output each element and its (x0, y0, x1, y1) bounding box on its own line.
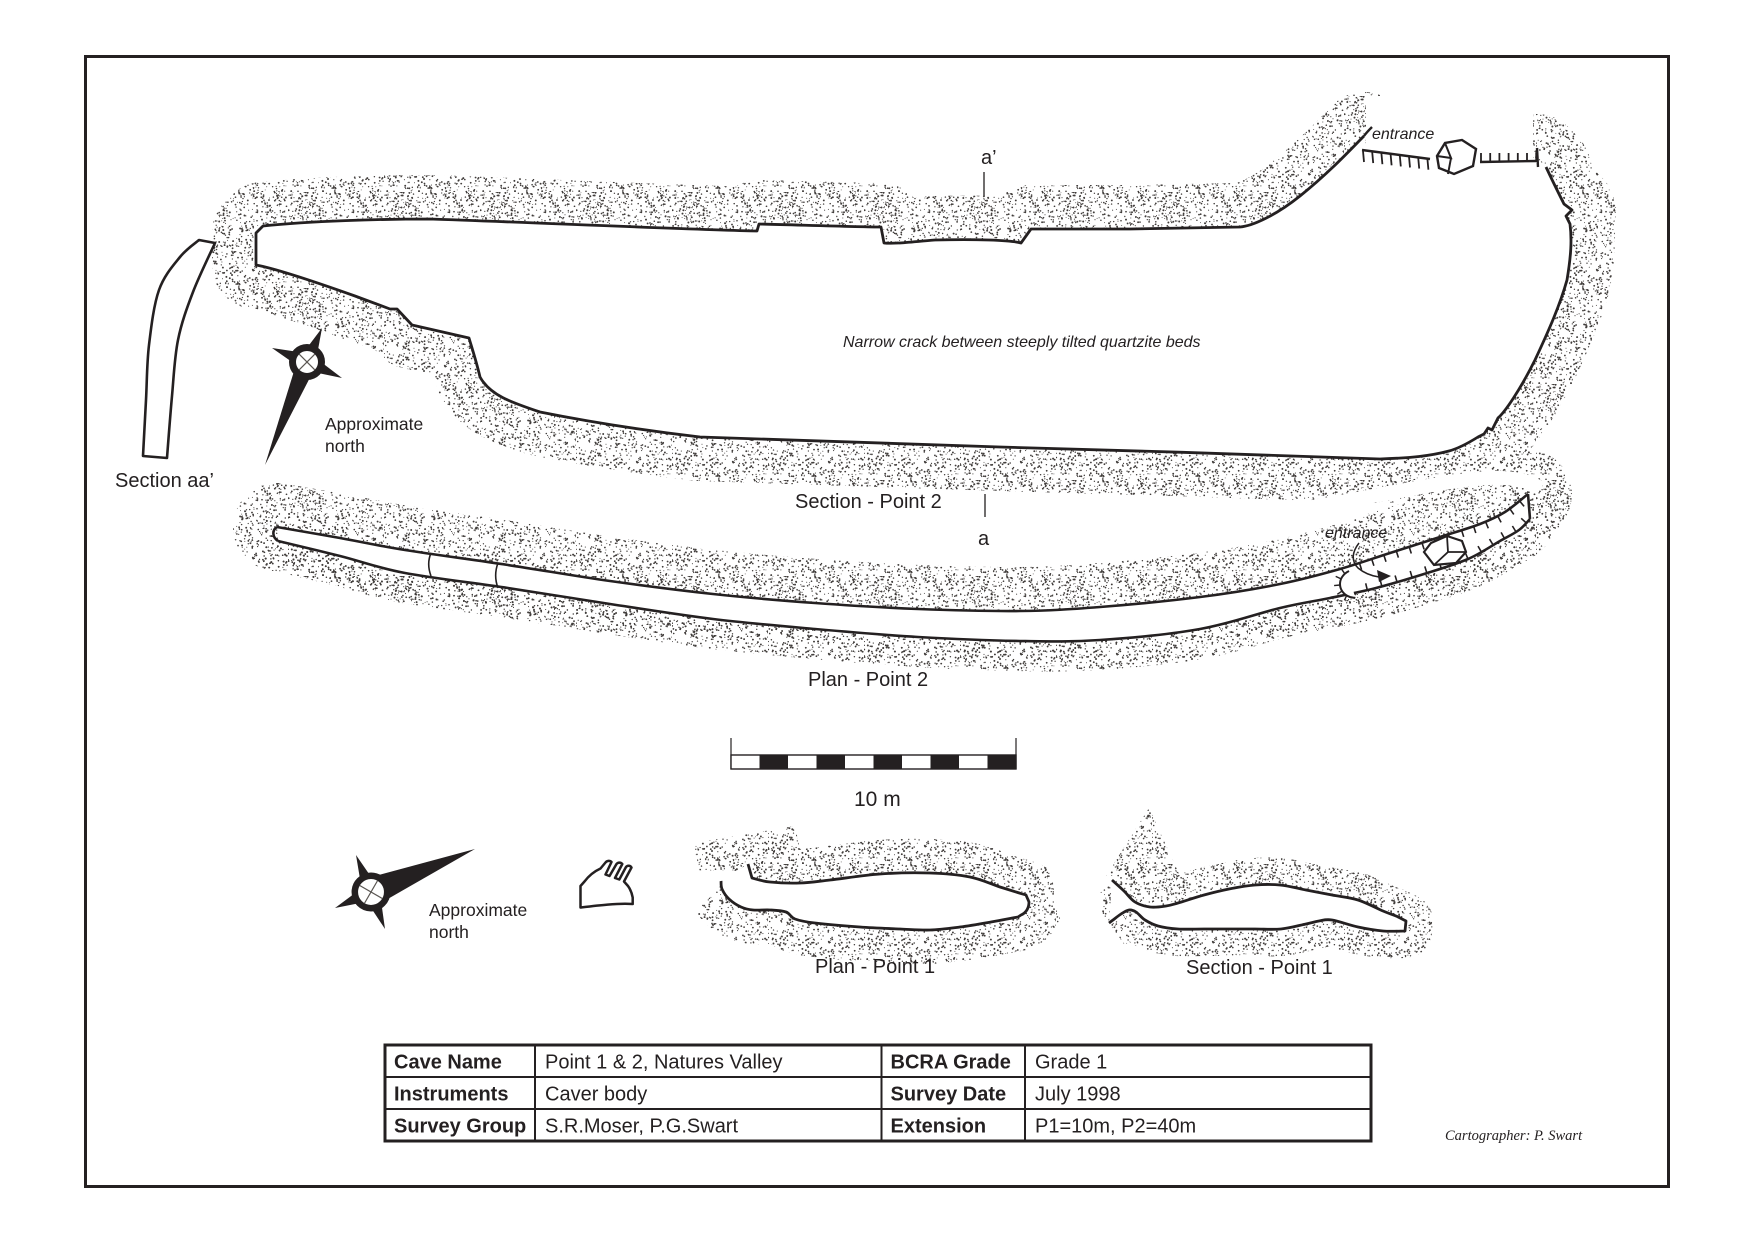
svg-text:a: a (978, 528, 990, 550)
svg-text:Approximate: Approximate (325, 414, 423, 434)
svg-text:entrance: entrance (1325, 525, 1387, 542)
svg-text:10 m: 10 m (854, 788, 901, 811)
svg-text:Section - Point 1: Section - Point 1 (1186, 957, 1333, 979)
svg-text:Grade 1: Grade 1 (1035, 1052, 1107, 1074)
svg-text:Section aa’: Section aa’ (115, 470, 214, 492)
svg-text:Cave Name: Cave Name (394, 1052, 502, 1074)
svg-text:Approximate: Approximate (429, 900, 527, 920)
svg-text:Extension: Extension (891, 1116, 987, 1138)
svg-text:a’: a’ (981, 147, 997, 169)
svg-text:Point 1 & 2, Natures Valley: Point 1 & 2, Natures Valley (545, 1052, 783, 1074)
svg-text:Cartographer: P. Swart: Cartographer: P. Swart (1445, 1128, 1583, 1144)
svg-text:Plan - Point 2: Plan - Point 2 (808, 669, 928, 691)
svg-text:BCRA Grade: BCRA Grade (891, 1052, 1011, 1074)
svg-text:north: north (429, 922, 469, 942)
svg-text:Instruments: Instruments (394, 1084, 508, 1106)
svg-text:Plan - Point 1: Plan - Point 1 (815, 956, 935, 978)
svg-text:July 1998: July 1998 (1035, 1084, 1121, 1106)
svg-text:Survey Date: Survey Date (891, 1084, 1007, 1106)
svg-text:S.R.Moser, P.G.Swart: S.R.Moser, P.G.Swart (545, 1116, 738, 1138)
svg-text:Survey Group: Survey Group (394, 1116, 526, 1138)
svg-text:Section - Point 2: Section - Point 2 (795, 491, 942, 513)
svg-text:Caver body: Caver body (545, 1084, 647, 1106)
svg-text:north: north (325, 436, 365, 456)
svg-text:Narrow crack between steeply t: Narrow crack between steeply tilted quar… (843, 334, 1201, 351)
svg-text:entrance: entrance (1372, 126, 1434, 143)
svg-text:P1=10m, P2=40m: P1=10m, P2=40m (1035, 1116, 1196, 1138)
